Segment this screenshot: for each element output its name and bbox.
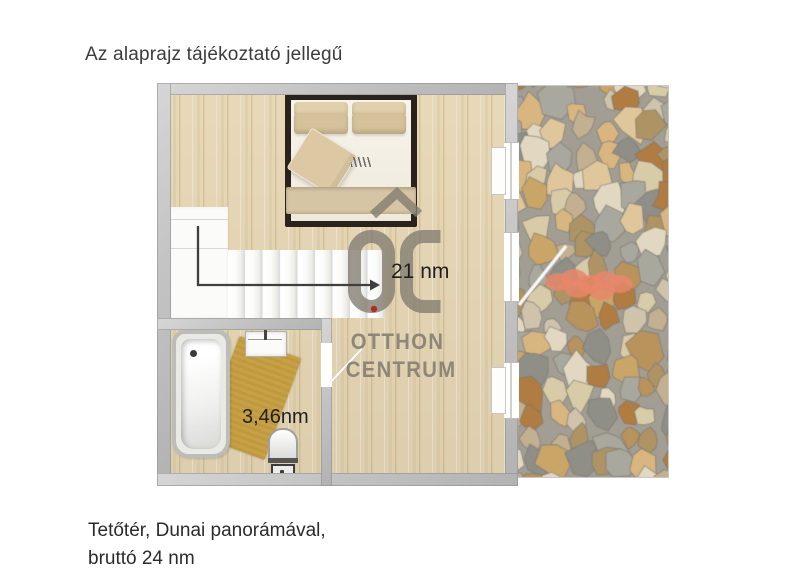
floor-plan: [157, 83, 518, 486]
bathtub: [172, 330, 230, 458]
window-sill: [491, 367, 506, 414]
watermark-line2: CENTRUM: [346, 357, 450, 383]
bathtub-basin: [181, 339, 221, 449]
disclaimer-text: Az alaprajz tájékoztató jellegű: [85, 44, 343, 66]
caption-line1: Tetőtér, Dunai panorámával,: [88, 517, 326, 545]
wall-top: [157, 83, 518, 95]
stair-step-edge: [170, 248, 228, 249]
wall-left: [157, 83, 171, 486]
main-area-label: 21 nm: [391, 260, 449, 284]
caption-text: Tetőtér, Dunai panorámával, bruttó 24 nm: [88, 517, 326, 573]
toilet-seat-hinge: [268, 458, 298, 463]
wall-bottom: [157, 473, 518, 486]
window-opening: [504, 142, 519, 200]
bathtub-drain: [190, 350, 197, 357]
window-pane: [510, 143, 512, 199]
window-pane: [510, 363, 512, 418]
sink: [245, 331, 287, 357]
bed-decor-item: [351, 157, 371, 167]
window-pane: [510, 233, 512, 301]
terrace-stone-texture: [518, 86, 668, 477]
stair-step-edge: [170, 219, 228, 220]
window-sill: [491, 147, 506, 195]
floorplan-page: Az alaprajz tájékoztató jellegű: [0, 0, 800, 578]
bed-pillow: [294, 113, 348, 134]
staircase-landing: [170, 207, 228, 318]
window-opening: [504, 362, 519, 419]
bed-pillow: [352, 113, 406, 134]
watermark-line1: OTTHON: [346, 329, 450, 355]
bathroom-area-label: 3,46nm: [242, 406, 309, 429]
logo-accent-dot: [371, 306, 377, 312]
terrace-door-opening: [504, 232, 519, 302]
wall-bathroom-top: [157, 318, 332, 330]
caption-line2: bruttó 24 nm: [88, 545, 326, 573]
otthon-centrum-logo-icon: [340, 183, 455, 328]
